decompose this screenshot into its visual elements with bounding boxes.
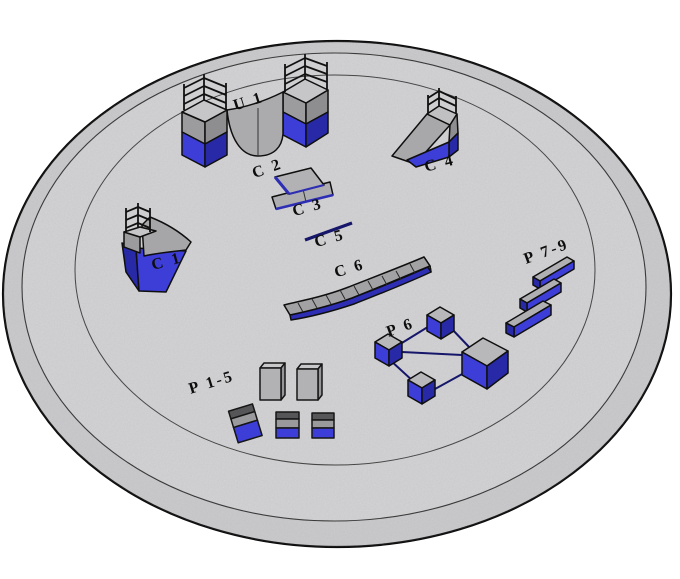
- p15-tall-box-2: [297, 364, 322, 400]
- p15-cube3-lid: [312, 413, 334, 420]
- p15-tall-box-1: [260, 363, 285, 400]
- p15-cube2-body: [276, 428, 299, 438]
- p15-box2-front: [297, 369, 318, 400]
- p15-cube-3: [312, 413, 334, 438]
- p15-cube2-lid: [276, 412, 299, 419]
- p15-box1-front: [260, 368, 281, 400]
- skatepark-scene: U 1 C 4 C 3 C 2 C 1: [0, 0, 680, 579]
- p15-cube-2: [276, 412, 299, 438]
- p15-cube3-band: [312, 420, 334, 428]
- p15-cube2-band: [276, 419, 299, 428]
- p15-cube3-body: [312, 428, 334, 438]
- skatepark-3d-view: U 1 C 4 C 3 C 2 C 1: [0, 0, 680, 579]
